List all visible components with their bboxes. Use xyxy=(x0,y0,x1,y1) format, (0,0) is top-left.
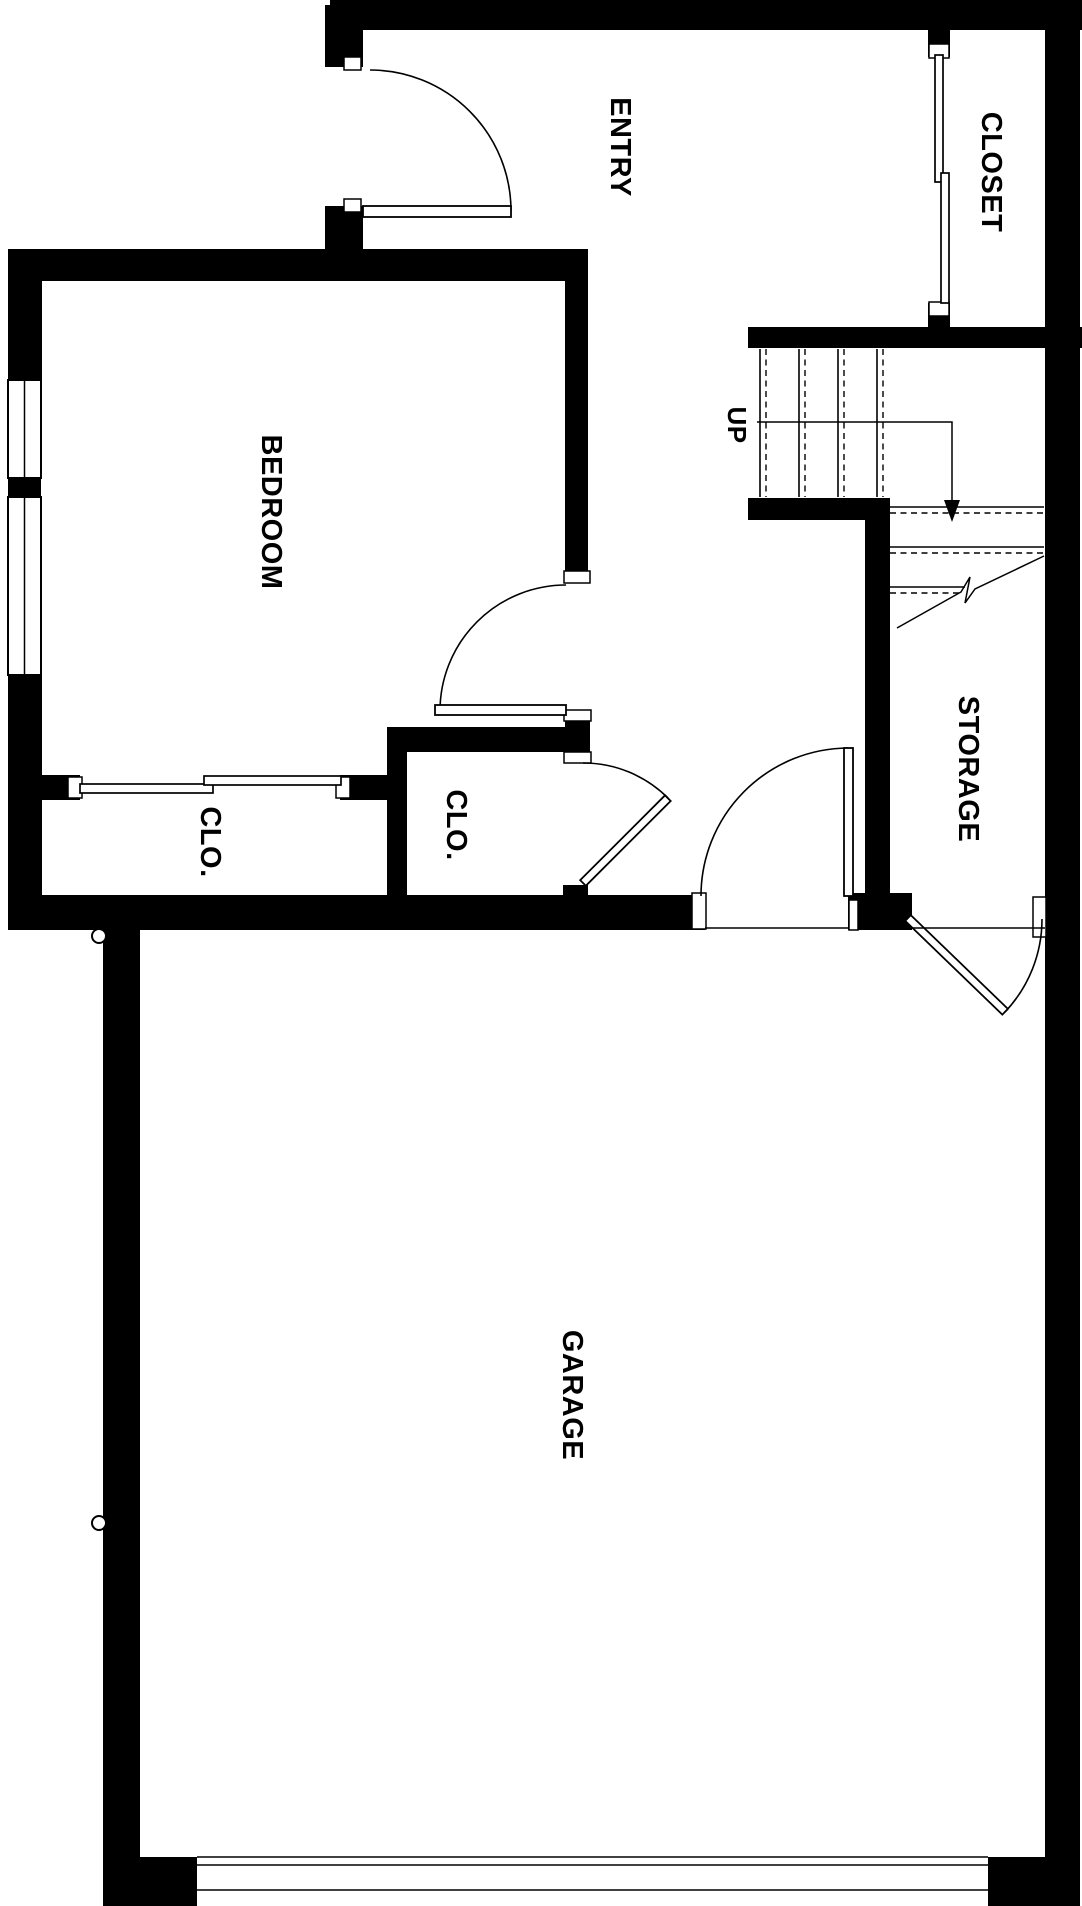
jamb-storage-door-right xyxy=(1033,897,1046,937)
bedroom-door-swing-arc xyxy=(440,585,566,711)
stair-break-line xyxy=(897,556,1044,628)
storage-door-leaf xyxy=(905,915,1008,1015)
front-door-swing-arc xyxy=(370,70,511,211)
wall-garage-corner-br xyxy=(988,1857,1080,1906)
up-arrow-line xyxy=(757,422,952,502)
clo-door-swing-arc xyxy=(583,763,668,798)
jamb-closet-slider-bottom xyxy=(929,302,949,316)
clo-left-slider-panel-back xyxy=(204,776,341,785)
jamb-front-door-bottom xyxy=(344,199,361,212)
jamb-clo-pillar-bottom xyxy=(564,752,591,763)
label-entry: ENTRY xyxy=(604,97,636,197)
wall-garage-corner-bl xyxy=(103,1857,197,1906)
label-clo-left: CLO. xyxy=(194,806,226,877)
bedroom-windows xyxy=(8,380,41,675)
bedroom-door-leaf xyxy=(435,705,566,715)
label-up: UP xyxy=(722,406,752,443)
floor-plan: ENTRY CLOSET BEDROOM UP STORAGE CLO. CLO… xyxy=(0,0,1082,1906)
post-marker-upper xyxy=(92,929,106,943)
jamb-bedroom-door-top xyxy=(564,571,590,583)
walls xyxy=(8,0,1082,1906)
wall-stair-top xyxy=(748,327,1082,348)
stairs xyxy=(757,349,1044,628)
label-storage: STORAGE xyxy=(952,696,984,842)
wall-clo-right-top xyxy=(387,727,590,752)
wall-window-mullion xyxy=(8,478,41,497)
wall-bedroom-right xyxy=(565,280,588,583)
jamb-front-door-top xyxy=(344,57,361,70)
front-door-leaf xyxy=(363,206,511,217)
label-closet: CLOSET xyxy=(975,112,1007,233)
garage-vehicle-door xyxy=(197,1857,988,1890)
clo-door-leaf xyxy=(580,795,671,886)
wall-stair-mid xyxy=(748,498,885,520)
post-marker-lower xyxy=(92,1516,106,1530)
wall-garage-left xyxy=(103,900,140,1863)
label-clo-right: CLO. xyxy=(440,789,472,860)
jamb-garage-door-left xyxy=(692,893,706,929)
closet-slider-panel-back xyxy=(941,173,949,303)
closet-slider-panel-front xyxy=(935,55,943,182)
wall-bedroom-top xyxy=(8,249,588,281)
label-bedroom: BEDROOM xyxy=(255,435,287,590)
label-garage: GARAGE xyxy=(556,1330,588,1460)
jamb-garage-door-right xyxy=(849,900,858,930)
sliding-doors xyxy=(80,55,949,793)
floor-plan-drawing: ENTRY CLOSET BEDROOM UP STORAGE CLO. CLO… xyxy=(0,0,1082,1906)
jamb-clo-pillar-top xyxy=(564,710,591,721)
wall-storage-left xyxy=(865,498,890,898)
clo-left-slider-panel-front xyxy=(80,784,213,793)
garage-door-swing-arc xyxy=(701,748,848,896)
wall-right xyxy=(1045,0,1080,1863)
wall-clo-door-hinge-block xyxy=(563,885,588,903)
wall-left-lower xyxy=(8,675,42,930)
garage-door-leaf xyxy=(844,748,853,896)
wall-clo-divider xyxy=(387,727,407,895)
door-jambs xyxy=(68,44,1046,937)
wall-left-upper xyxy=(8,249,42,380)
wall-top xyxy=(330,0,1082,30)
up-arrow-head xyxy=(944,500,960,522)
